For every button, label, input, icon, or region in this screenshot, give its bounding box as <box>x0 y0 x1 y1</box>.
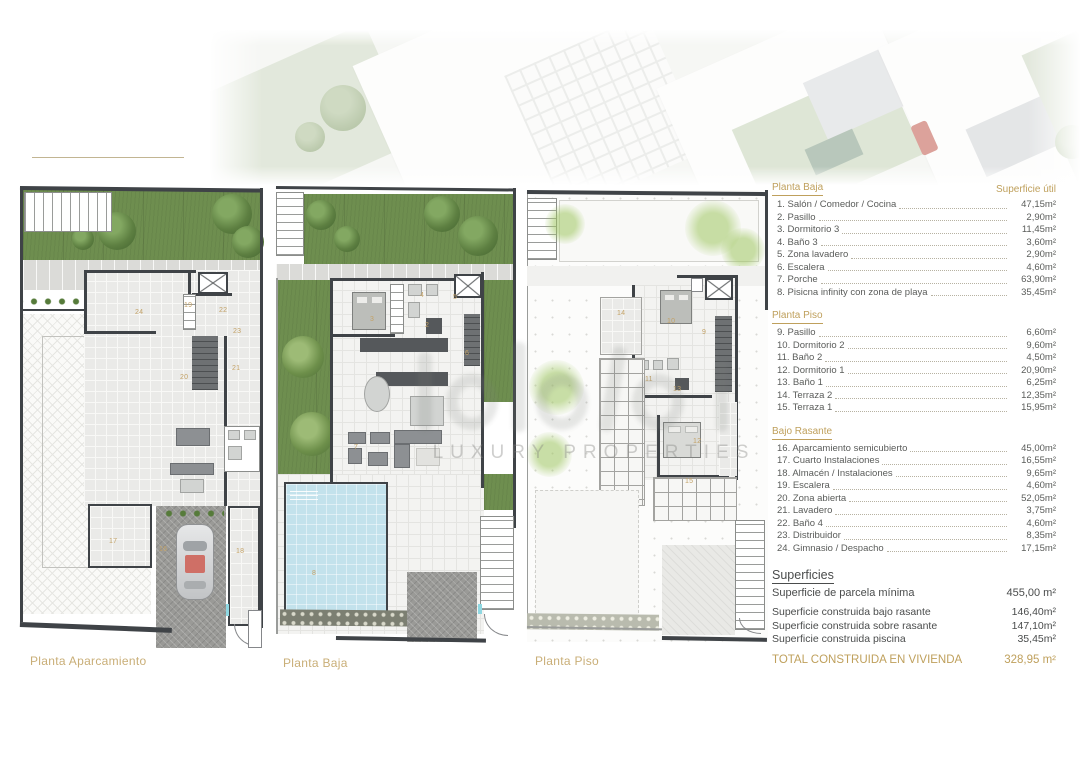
legend-item: 23. Distribuidor8,35m² <box>772 530 1056 543</box>
dotted-leader <box>835 398 1007 399</box>
door-arc <box>484 614 508 636</box>
bath-fixture <box>653 360 663 370</box>
legend-item-value: 4,50m² <box>1010 352 1056 365</box>
legend-item-label: 2. Pasillo <box>772 212 816 225</box>
wall <box>224 336 227 506</box>
legend-item: 22. Baño 44,60m² <box>772 518 1056 531</box>
legend-item-label: 13. Baño 1 <box>772 377 823 390</box>
stairs-exterior <box>480 516 514 610</box>
legend-item: 11. Baño 24,50m² <box>772 352 1056 365</box>
divider-line <box>32 157 184 158</box>
wall <box>481 272 484 488</box>
zona-abierta-floor <box>84 336 260 506</box>
legend-item-value: 4,60m² <box>1010 262 1056 275</box>
legend-item-value: 6,25m² <box>1010 377 1056 390</box>
superficies-row: Superficie construida sobre rasante147,1… <box>772 620 1056 634</box>
legend-item: 3. Dormitorio 311,45m² <box>772 224 1056 237</box>
bed <box>660 290 692 324</box>
dotted-leader <box>887 551 1007 552</box>
infinity-pool <box>284 482 388 614</box>
legend-item-value: 2,90m² <box>1010 212 1056 225</box>
dining-table <box>410 396 444 426</box>
superficies-total-value: 328,95 m² <box>1004 653 1056 667</box>
legend-section-header: Planta Piso <box>772 310 1056 324</box>
legend-item-label: 4. Baño 3 <box>772 237 818 250</box>
wall <box>657 415 660 477</box>
superficies-row: Superficie construida piscina35,45m² <box>772 633 1056 647</box>
wardrobe <box>390 284 404 334</box>
legend-item: 12. Dormitorio 120,90m² <box>772 365 1056 378</box>
room-number: 7 <box>354 443 358 452</box>
wall <box>84 270 196 273</box>
legend-item: 16. Aparcamiento semicubierto45,00m² <box>772 443 1056 456</box>
dotted-leader <box>819 336 1007 337</box>
legend-item-value: 11,45m² <box>1010 224 1056 237</box>
room-instalaciones <box>88 504 152 568</box>
wall <box>765 190 768 310</box>
coffee-table <box>180 479 204 493</box>
dotted-leader <box>821 283 1007 284</box>
room-number: 18 <box>236 547 244 556</box>
balcony-strip <box>719 402 737 476</box>
oval-dining-table <box>364 376 390 412</box>
dotted-leader <box>825 361 1007 362</box>
legend-item-value: 8,35m² <box>1010 530 1056 543</box>
legend-item-label: 24. Gimnasio / Despacho <box>772 543 884 556</box>
legend-item-value: 47,15m² <box>1010 199 1056 212</box>
car-interior <box>185 555 205 573</box>
legend-item: 2. Pasillo2,90m² <box>772 212 1056 225</box>
sketch-tree-icon <box>527 432 572 477</box>
kitchen-appliance <box>244 430 256 440</box>
room-number: 8 <box>312 569 316 578</box>
legend-item: 15. Terraza 115,95m² <box>772 402 1056 415</box>
dotted-leader <box>833 489 1007 490</box>
utility-mark <box>226 604 229 616</box>
elevator-shaft <box>198 272 228 294</box>
legend-item-value: 17,15m² <box>1010 543 1056 556</box>
door-arc <box>739 618 761 634</box>
wall <box>330 334 392 337</box>
legend-item-label: 12. Dormitorio 1 <box>772 365 845 378</box>
legend-section-header: Bajo Rasante <box>772 426 1056 440</box>
room-number: 5 <box>453 293 457 302</box>
pillow <box>371 296 383 304</box>
entrance-step <box>248 610 262 648</box>
dotted-leader <box>910 451 1007 452</box>
superficies-row-value: 147,10m² <box>1012 620 1056 634</box>
plan-caption-baja: Planta Baja <box>283 656 348 670</box>
kitchen-counter <box>360 338 448 352</box>
plan-caption-aparcamiento: Planta Aparcamiento <box>30 654 146 668</box>
dotted-leader <box>826 526 1007 527</box>
superficies-row-value: 35,45m² <box>1017 633 1056 647</box>
legend-item-label: 22. Baño 4 <box>772 518 823 531</box>
legend-item: 6. Escalera4,60m² <box>772 262 1056 275</box>
stairs-exterior <box>276 192 304 256</box>
bed <box>352 292 386 330</box>
legend-item-label: 1. Salón / Comedor / Cocina <box>772 199 896 212</box>
legend-item-label: 20. Zona abierta <box>772 493 846 506</box>
pillow <box>678 294 689 301</box>
stairs-main <box>192 336 218 390</box>
legend-item-label: 16. Aparcamiento semicubierto <box>772 443 907 456</box>
room-number: 10 <box>667 317 675 326</box>
room-number: 22 <box>219 306 227 315</box>
superficies-title-text: Superficies <box>772 568 834 584</box>
kitchen-appliance <box>228 446 242 460</box>
legend-item-label: 5. Zona lavadero <box>772 249 848 262</box>
legend-item-value: 6,60m² <box>1010 327 1056 340</box>
superficies-title: Superficies <box>772 568 1056 582</box>
legend-item: 14. Terraza 212,35m² <box>772 390 1056 403</box>
legend-sections: Planta BajaSuperficie útil1. Salón / Com… <box>772 182 1056 555</box>
wall <box>527 190 768 196</box>
dotted-leader <box>842 233 1007 234</box>
legend-item-value: 12,35m² <box>1010 390 1056 403</box>
legend-item-value: 2,90m² <box>1010 249 1056 262</box>
legend-item-value: 3,75m² <box>1010 505 1056 518</box>
dotted-leader <box>848 348 1007 349</box>
legend-item: 24. Gimnasio / Despacho17,15m² <box>772 543 1056 556</box>
room-number: 6 <box>465 349 469 358</box>
palm-tree-icon <box>282 336 324 378</box>
legend-section-header: Planta BajaSuperficie útil <box>772 182 1056 196</box>
wall <box>276 186 516 192</box>
bath-fixture <box>667 358 679 370</box>
room-number: 21 <box>232 364 240 373</box>
legend-item-label: 7. Porche <box>772 274 818 287</box>
wall <box>84 331 156 334</box>
dotted-leader <box>844 539 1007 540</box>
rug <box>416 448 440 466</box>
sofa <box>170 463 214 475</box>
dotted-leader <box>835 411 1007 412</box>
dotted-leader <box>931 295 1007 296</box>
legend-item-label: 11. Baño 2 <box>772 352 822 365</box>
wall <box>260 188 263 628</box>
lounge-table <box>368 452 388 466</box>
dotted-leader <box>821 245 1007 246</box>
sofa <box>394 444 410 468</box>
wall <box>20 188 23 622</box>
room-number: 17 <box>109 537 117 546</box>
legend-item-value: 15,95m² <box>1010 402 1056 415</box>
legend-item-value: 45,00m² <box>1010 443 1056 456</box>
legend-item: 17. Cuarto Instalaciones16,55m² <box>772 455 1056 468</box>
legend-item-value: 9,65m² <box>1010 468 1056 481</box>
superficies-row-value: 146,40m² <box>1012 606 1056 620</box>
mosaic-border <box>280 609 420 626</box>
dotted-leader <box>851 258 1007 259</box>
legend-item: 5. Zona lavadero2,90m² <box>772 249 1056 262</box>
dotted-leader <box>899 208 1007 209</box>
room-number: 24 <box>135 308 143 317</box>
sketch-tree-icon <box>545 204 585 244</box>
legend-item-value: 35,45m² <box>1010 287 1056 300</box>
lounge-sofa <box>370 432 390 444</box>
wall <box>662 636 767 642</box>
legend-item-label: 6. Escalera <box>772 262 825 275</box>
legend-item-label: 3. Dormitorio 3 <box>772 224 839 237</box>
room-number: 15 <box>685 477 693 486</box>
legend-item-label: 9. Pasillo <box>772 327 816 340</box>
dotted-leader <box>882 464 1007 465</box>
brochure-page: 242223192021171618 Planta Aparcamiento <box>0 0 1080 759</box>
legend-item-value: 4,60m² <box>1010 480 1056 493</box>
legend-section-title: Planta Piso <box>772 310 823 324</box>
legend-item: 9. Pasillo6,60m² <box>772 327 1056 340</box>
tree-icon <box>424 196 460 232</box>
dotted-leader <box>835 514 1007 515</box>
sketch-tree-icon <box>529 360 584 415</box>
legend-column-header: Superficie útil <box>996 184 1056 196</box>
wall <box>20 622 172 633</box>
tree-icon <box>334 226 360 252</box>
terrace-15-pergola <box>653 477 737 521</box>
pool-ghost-outline <box>535 490 639 618</box>
legend-item-label: 23. Distribuidor <box>772 530 841 543</box>
room-number: 3 <box>370 315 374 324</box>
legend-item: 10. Dormitorio 29,60m² <box>772 340 1056 353</box>
superficies-primary-value: 455,00 m² <box>1006 586 1056 600</box>
room-number: 14 <box>617 309 625 318</box>
palm-tree-icon <box>290 412 334 456</box>
legend-item-label: 18. Almacén / Instalaciones <box>772 468 893 481</box>
legend-item: 1. Salón / Comedor / Cocina47,15m² <box>772 199 1056 212</box>
superficies-row-label: Superficie construida bajo rasante <box>772 606 931 620</box>
pillow <box>356 296 368 304</box>
dotted-leader <box>828 270 1007 271</box>
superficies-row: Superficie construida bajo rasante146,40… <box>772 606 1056 620</box>
legend-item: 21. Lavadero3,75m² <box>772 505 1056 518</box>
garden-side <box>484 280 514 402</box>
superficies-row-label: Superficie construida piscina <box>772 633 906 647</box>
legend-item: 19. Escalera4,60m² <box>772 480 1056 493</box>
plan-caption-piso: Planta Piso <box>535 654 599 668</box>
pool-steps <box>290 488 318 500</box>
pergola-grid <box>599 358 645 506</box>
pillow <box>685 426 698 433</box>
superficies-total-label: TOTAL CONSTRUIDA EN VIVIENDA <box>772 653 962 667</box>
wall <box>513 188 516 528</box>
legend-item-value: 3,60m² <box>1010 237 1056 250</box>
pillow <box>668 426 681 433</box>
legend-item-value: 9,60m² <box>1010 340 1056 353</box>
sofa <box>394 430 442 444</box>
legend-item-label: 15. Terraza 1 <box>772 402 832 415</box>
legend-item-value: 52,05m² <box>1010 493 1056 506</box>
legend-item-label: 8. Pisicna infinity con zona de playa <box>772 287 928 300</box>
legend-item-label: 14. Terraza 2 <box>772 390 832 403</box>
legend-item-label: 17. Cuarto Instalaciones <box>772 455 879 468</box>
legend-item-value: 16,55m² <box>1010 455 1056 468</box>
room-number: 16 <box>159 545 167 554</box>
room-number: 2 <box>425 321 429 330</box>
floorplan-baja: 3452678 <box>276 186 516 648</box>
room-number: 13 <box>673 385 681 394</box>
room-number: 23 <box>233 327 241 336</box>
driveway-ghost <box>662 545 735 635</box>
dotted-leader <box>819 220 1007 221</box>
driveway <box>407 572 477 642</box>
boundary-line <box>276 278 278 634</box>
stairs-interior <box>464 314 480 366</box>
legend-section-title: Planta Baja <box>772 182 823 196</box>
car-top-view <box>176 524 214 600</box>
legend-item: 20. Zona abierta52,05m² <box>772 493 1056 506</box>
tree-icon <box>306 200 336 230</box>
floorplan-aparcamiento: 242223192021171618 <box>20 186 263 652</box>
stairs-exterior <box>24 192 112 232</box>
bath-fixture <box>426 284 438 296</box>
legend-item: 13. Baño 16,25m² <box>772 377 1056 390</box>
room-number: 4 <box>420 291 424 300</box>
superficies-total-row: TOTAL CONSTRUIDA EN VIVIENDA 328,95 m² <box>772 653 1056 667</box>
stairs-interior <box>715 316 732 392</box>
superficies-rows: Superficie construida bajo rasante146,40… <box>772 606 1056 647</box>
tree-icon <box>458 216 498 256</box>
room-number: 11 <box>645 375 653 384</box>
room-number: 12 <box>693 437 701 446</box>
wall <box>330 278 333 488</box>
aerial-render <box>210 30 1080 185</box>
pillow <box>664 294 675 301</box>
planter-row <box>158 506 224 518</box>
elevator-shaft <box>454 274 482 298</box>
garden-side <box>484 474 514 510</box>
legend-panel: Planta BajaSuperficie útil1. Salón / Com… <box>772 182 1056 667</box>
legend-item-label: 19. Escalera <box>772 480 830 493</box>
elevator-shaft <box>705 278 733 300</box>
car-rear-window <box>184 581 206 589</box>
dotted-leader <box>849 501 1007 502</box>
car-windshield <box>183 541 207 551</box>
legend-item: 4. Baño 33,60m² <box>772 237 1056 250</box>
terrace-14 <box>600 297 642 355</box>
superficies-primary-row: Superficie de parcela mínima 455,00 m² <box>772 586 1056 600</box>
legend-item: 7. Porche63,90m² <box>772 274 1056 287</box>
legend-item-value: 63,90m² <box>1010 274 1056 287</box>
stairs-interior <box>183 294 196 330</box>
dining-table <box>176 428 210 446</box>
legend-item-value: 20,90m² <box>1010 365 1056 378</box>
wall <box>84 270 87 334</box>
superficies-primary-label: Superficie de parcela mínima <box>772 586 914 600</box>
legend-item-label: 10. Dormitorio 2 <box>772 340 845 353</box>
superficies-row-label: Superficie construida sobre rasante <box>772 620 937 634</box>
room-number: 19 <box>184 301 192 310</box>
room-number: 20 <box>180 373 188 382</box>
aerial-fade-overlay <box>210 30 1080 185</box>
legend-item: 8. Pisicna infinity con zona de playa35,… <box>772 287 1056 300</box>
floorplan-piso: 1410911131215 <box>527 190 768 642</box>
legend-item: 18. Almacén / Instalaciones9,65m² <box>772 468 1056 481</box>
legend-item-value: 4,60m² <box>1010 518 1056 531</box>
dotted-leader <box>896 476 1007 477</box>
shaft <box>691 278 703 292</box>
dotted-leader <box>848 373 1007 374</box>
room-number: 9 <box>702 328 706 337</box>
kitchen-appliance <box>228 430 240 440</box>
utility-mark <box>478 604 482 614</box>
bath-fixture <box>408 302 420 318</box>
stairs-exterior <box>735 520 765 630</box>
room-almacen <box>228 506 260 626</box>
dotted-leader <box>826 386 1007 387</box>
legend-item-label: 21. Lavadero <box>772 505 832 518</box>
legend-section-title: Bajo Rasante <box>772 426 832 440</box>
